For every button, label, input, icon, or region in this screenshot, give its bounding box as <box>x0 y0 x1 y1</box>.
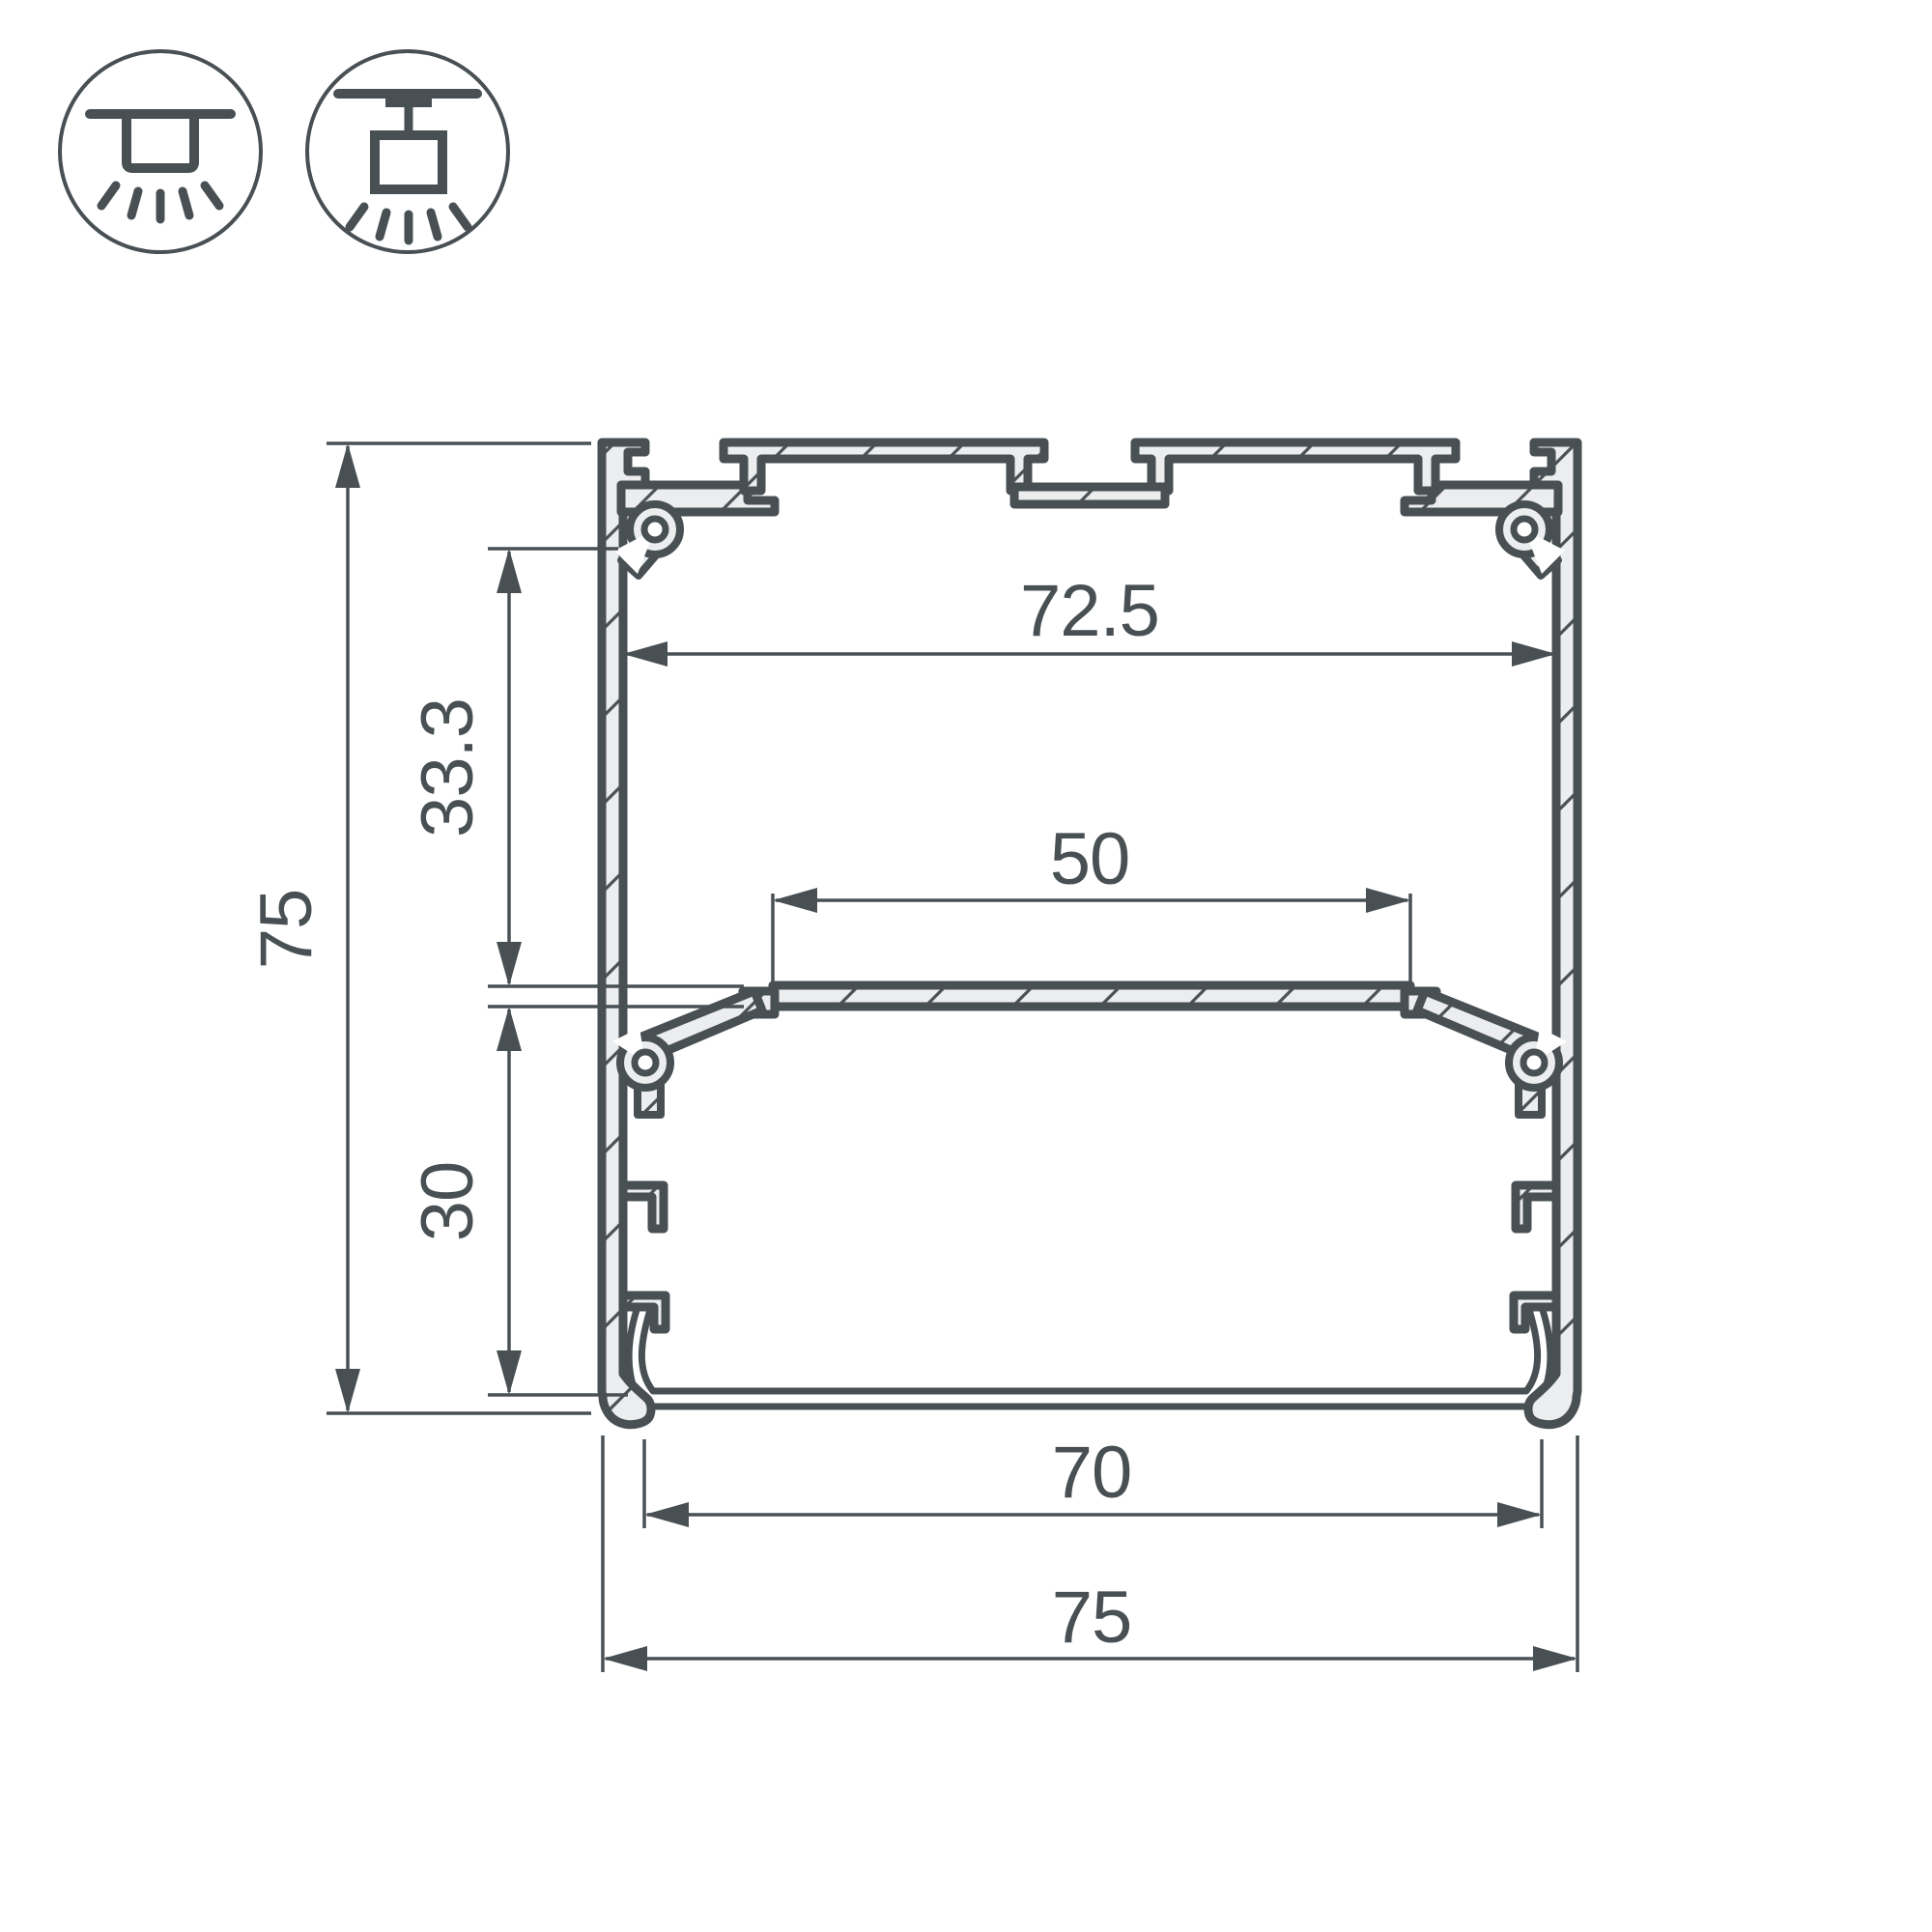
dimension-overall-height <box>327 443 591 1413</box>
top-center-channel-floor <box>1014 487 1165 504</box>
left-wall-hook-upper <box>623 1185 664 1229</box>
diffuser-cover <box>629 1304 1550 1406</box>
right-wall <box>1528 442 1577 1425</box>
dimension-labels: 72.5 50 70 75 75 33.3 30 <box>245 570 1159 1659</box>
led-platform <box>773 985 1410 1007</box>
top-web-left <box>724 442 1044 491</box>
dimension-lines <box>327 443 1577 1672</box>
label-platform-width: 50 <box>1050 818 1130 900</box>
right-wall-hook-upper <box>1516 1185 1556 1229</box>
label-lower-chamber-height: 30 <box>407 1162 489 1242</box>
technical-drawing-page: 72.5 50 70 75 75 33.3 30 <box>0 0 1932 1932</box>
label-overall-width: 75 <box>1052 1577 1132 1659</box>
label-overall-height: 75 <box>245 890 327 970</box>
label-top-inner-width: 72.5 <box>1020 570 1159 652</box>
profile-cross-section-drawing: 72.5 50 70 75 75 33.3 30 <box>0 0 1932 1932</box>
suspended-mount-light-icon <box>307 51 508 252</box>
fixture-box <box>375 135 442 189</box>
left-wall <box>602 442 651 1425</box>
label-upper-chamber-height: 33.3 <box>407 698 489 838</box>
label-bottom-opening-width: 70 <box>1052 1432 1132 1514</box>
dimension-platform-width <box>773 888 1410 983</box>
top-web-right <box>1135 442 1456 491</box>
surface-mount-light-icon <box>60 51 261 252</box>
